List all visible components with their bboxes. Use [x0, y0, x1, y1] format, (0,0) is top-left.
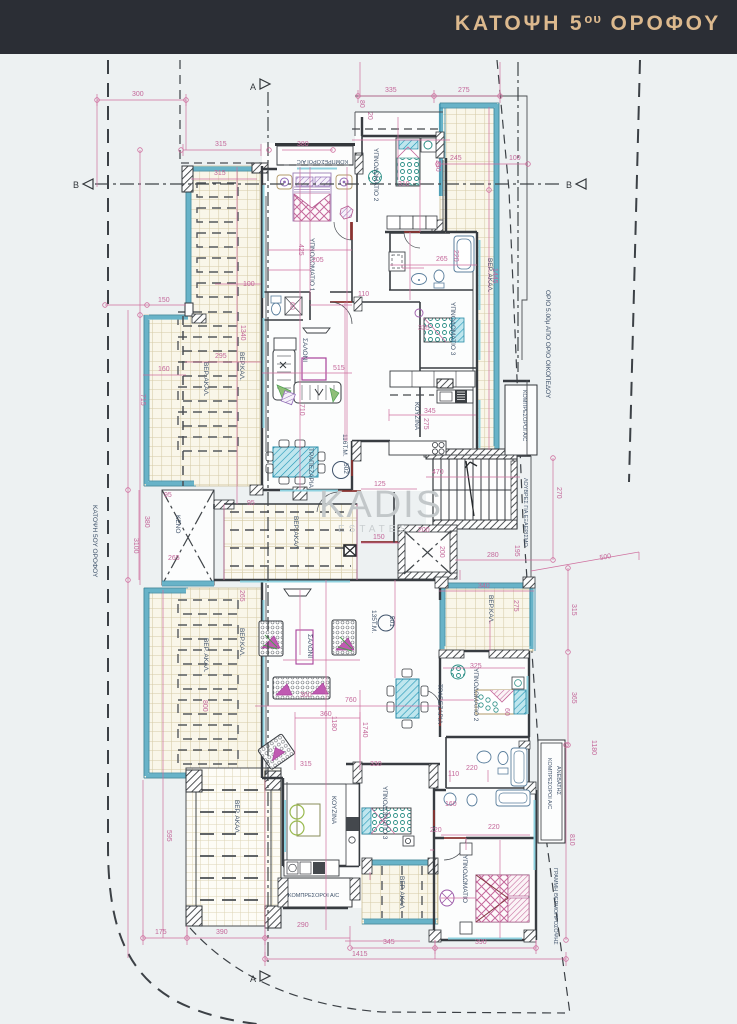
svg-text:270: 270 [555, 487, 562, 499]
svg-text:290: 290 [297, 922, 309, 929]
svg-text:275: 275 [512, 600, 519, 612]
svg-text:95: 95 [247, 500, 255, 507]
svg-text:160: 160 [445, 801, 457, 808]
svg-text:310: 310 [398, 181, 410, 188]
svg-text:330: 330 [434, 160, 441, 172]
svg-text:275: 275 [458, 87, 470, 94]
svg-text:220: 220 [466, 765, 478, 772]
svg-text:110: 110 [448, 771, 459, 778]
svg-text:345: 345 [424, 408, 436, 415]
svg-text:710: 710 [298, 404, 305, 416]
svg-text:ΥΠΝΟΔΩΜΑΤΙΟ: ΥΠΝΟΔΩΜΑΤΙΟ [461, 855, 468, 903]
svg-text:Β: Β [73, 180, 79, 190]
svg-text:200: 200 [418, 527, 430, 534]
svg-text:95: 95 [164, 492, 172, 499]
svg-text:ΥΠΝΟΔΩΜΑΤΙΟ 1: ΥΠΝΟΔΩΜΑΤΙΟ 1 [308, 238, 315, 292]
svg-text:325: 325 [470, 663, 482, 670]
svg-text:ΒΕΡ.ΚΑΛ.: ΒΕΡ.ΚΑΛ. [238, 352, 245, 381]
svg-text:135Τ.Μ.: 135Τ.Μ. [370, 610, 377, 633]
svg-text:ΒΕΡ. ΑΚΑΛ.: ΒΕΡ. ΑΚΑΛ. [202, 638, 209, 673]
svg-text:ESTATES: ESTATES [338, 524, 410, 535]
svg-text:150: 150 [373, 534, 385, 541]
svg-text:1340: 1340 [239, 325, 246, 341]
svg-text:360: 360 [300, 692, 312, 699]
svg-text:425: 425 [297, 244, 304, 256]
svg-text:800: 800 [201, 700, 208, 712]
svg-text:1740: 1740 [361, 722, 368, 738]
svg-text:810: 810 [568, 834, 575, 846]
svg-text:ΚΟΥΖΙΝΑ: ΚΟΥΖΙΝΑ [330, 796, 337, 825]
svg-text:Α: Α [250, 974, 256, 984]
svg-text:175: 175 [155, 929, 167, 936]
svg-text:390: 390 [216, 929, 228, 936]
svg-text:295: 295 [215, 353, 227, 360]
svg-text:Β: Β [566, 180, 572, 190]
svg-text:300: 300 [132, 91, 144, 98]
svg-text:ΚΟΜΠΡΕΣΟΡΟΙ Α/C: ΚΟΜΠΡΕΣΟΡΟΙ Α/C [288, 893, 339, 899]
svg-text:345: 345 [383, 939, 395, 946]
svg-text:60: 60 [503, 708, 510, 716]
svg-text:ΒΕΡ. ΑΚΑΛ: ΒΕΡ. ΑΚΑΛ [233, 800, 240, 833]
svg-text:ΛΟΥΒΡΕΣ ΓΙΑ ΕΞΑΕΡΙΣΜΟ: ΛΟΥΒΡΕΣ ΓΙΑ ΕΞΑΕΡΙΣΜΟ [522, 478, 528, 547]
svg-text:ΣΑΛΟΝΙ: ΣΑΛΟΝΙ [301, 338, 308, 362]
svg-text:ΚΟΜΠΡΕΣΟΡΟΙ Α/C: ΚΟΜΠΡΕΣΟΡΟΙ Α/C [546, 758, 552, 809]
svg-text:330: 330 [370, 761, 382, 768]
svg-text:ΒΕΡ. ΑΚΑΛ.: ΒΕΡ. ΑΚΑΛ. [202, 362, 209, 397]
svg-text:ΑΝΕΒΑΤΗΣ: ΑΝΕΒΑΤΗΣ [555, 766, 561, 796]
svg-text:1180: 1180 [330, 716, 337, 731]
svg-text:245: 245 [450, 155, 462, 162]
svg-text:ΥΠΝΟΔΩΜΑΤΙΟ 3: ΥΠΝΟΔΩΜΑΤΙΟ 3 [449, 302, 456, 356]
svg-text:200: 200 [438, 546, 445, 558]
svg-text:ΤΡΑΠΕΖΑΡΙΑ: ΤΡΑΠΕΖΑΡΙΑ [307, 448, 314, 489]
svg-text:100: 100 [243, 281, 255, 288]
svg-text:60: 60 [288, 302, 295, 310]
svg-text:595: 595 [165, 830, 172, 842]
svg-text:315: 315 [300, 761, 312, 768]
svg-text:515: 515 [333, 365, 345, 372]
svg-text:315: 315 [215, 141, 227, 148]
svg-text:275: 275 [422, 418, 429, 430]
svg-text:ΓΡΑΜΜΗ ΘΕΡΜΟΠΡΟΣΟΨΗΣ: ΓΡΑΜΜΗ ΘΕΡΜΟΠΡΟΣΟΨΗΣ [552, 868, 558, 945]
svg-text:502: 502 [342, 463, 349, 474]
svg-text:3100: 3100 [132, 538, 139, 554]
svg-text:150: 150 [158, 297, 170, 304]
svg-text:ΒΕΡ. ΑΚΑΛ: ΒΕΡ. ΑΚΑΛ [398, 876, 405, 909]
svg-text:1180: 1180 [590, 740, 597, 755]
svg-text:160: 160 [158, 366, 170, 373]
svg-text:335: 335 [418, 325, 430, 332]
svg-text:80: 80 [358, 100, 365, 108]
svg-text:ΟΡΙΟ 5.00μ ΑΠΟ ΟΡΙΟ ΟΙΚΟΠΕΔΟΥ: ΟΡΙΟ 5.00μ ΑΠΟ ΟΡΙΟ ΟΙΚΟΠΕΔΟΥ [544, 290, 551, 399]
svg-text:335: 335 [385, 87, 397, 94]
svg-text:ΚΟΜΠΡΕΣΟΡΟΙ Α/C: ΚΟΜΠΡΕΣΟΡΟΙ Α/C [297, 158, 348, 164]
svg-text:ΚΑΤΟΨΗ 5ΟΥ ΟΡΟΦΟΥ: ΚΑΤΟΨΗ 5ΟΥ ΟΡΟΦΟΥ [91, 505, 98, 578]
svg-text:ΤΡΑΠΕΖΑΡΙΑ: ΤΡΑΠΕΖΑΡΙΑ [436, 684, 443, 725]
svg-text:ΒΕΡ.ΚΑΛ.: ΒΕΡ.ΚΑΛ. [238, 628, 245, 657]
svg-text:1445: 1445 [491, 268, 498, 284]
svg-text:265: 265 [436, 256, 448, 263]
svg-text:280: 280 [487, 552, 499, 559]
svg-text:ΚΟΜΠΡΕΣΟΡΟΙ Α/C: ΚΟΜΠΡΕΣΟΡΟΙ Α/C [521, 390, 527, 441]
svg-text:501: 501 [388, 616, 395, 627]
svg-text:ΒΕΡ.ΚΑΛ.: ΒΕΡ.ΚΑΛ. [487, 595, 494, 624]
svg-text:20: 20 [366, 112, 373, 120]
svg-text:195: 195 [513, 545, 520, 557]
svg-text:ΥΠΝΟΔΩΜΑΤΙΟ 2: ΥΠΝΟΔΩΜΑΤΙΟ 2 [472, 668, 479, 722]
svg-text:715: 715 [139, 394, 146, 406]
svg-text:760: 760 [345, 697, 357, 704]
svg-text:220: 220 [430, 827, 442, 834]
svg-text:380: 380 [143, 516, 150, 528]
svg-text:365: 365 [570, 692, 577, 704]
svg-text:Α: Α [250, 82, 256, 92]
svg-text:220: 220 [488, 824, 500, 831]
svg-text:ΥΠΝΟΔΩΜΑΤΙΟ 3: ΥΠΝΟΔΩΜΑΤΙΟ 3 [381, 786, 388, 840]
svg-text:315: 315 [214, 170, 226, 177]
svg-text:220: 220 [452, 250, 459, 262]
svg-text:380: 380 [297, 141, 309, 148]
svg-text:470: 470 [432, 469, 444, 476]
svg-text:ΒΕΡ. ΑΚΑΛ: ΒΕΡ. ΑΚΑΛ [292, 516, 299, 549]
svg-text:340: 340 [478, 583, 490, 590]
svg-text:ΚΕΝΟ: ΚΕΝΟ [174, 515, 181, 533]
svg-text:265: 265 [168, 555, 180, 562]
svg-text:ΚΟΥΖΙΝΑ: ΚΟΥΖΙΝΑ [413, 402, 420, 431]
svg-text:ΥΠΝΟΔΩΜΑΤΙΟ 2: ΥΠΝΟΔΩΜΑΤΙΟ 2 [372, 148, 379, 202]
svg-text:110: 110 [358, 291, 369, 298]
svg-text:1415: 1415 [352, 951, 368, 958]
svg-text:390: 390 [475, 939, 487, 946]
svg-text:265: 265 [238, 590, 245, 602]
svg-text:KADIS: KADIS [319, 484, 443, 526]
svg-text:100: 100 [509, 155, 521, 162]
svg-text:315: 315 [570, 604, 577, 616]
svg-text:ΣΑΛΟΝΙ: ΣΑΛΟΝΙ [306, 634, 313, 658]
svg-text:205: 205 [312, 257, 324, 264]
